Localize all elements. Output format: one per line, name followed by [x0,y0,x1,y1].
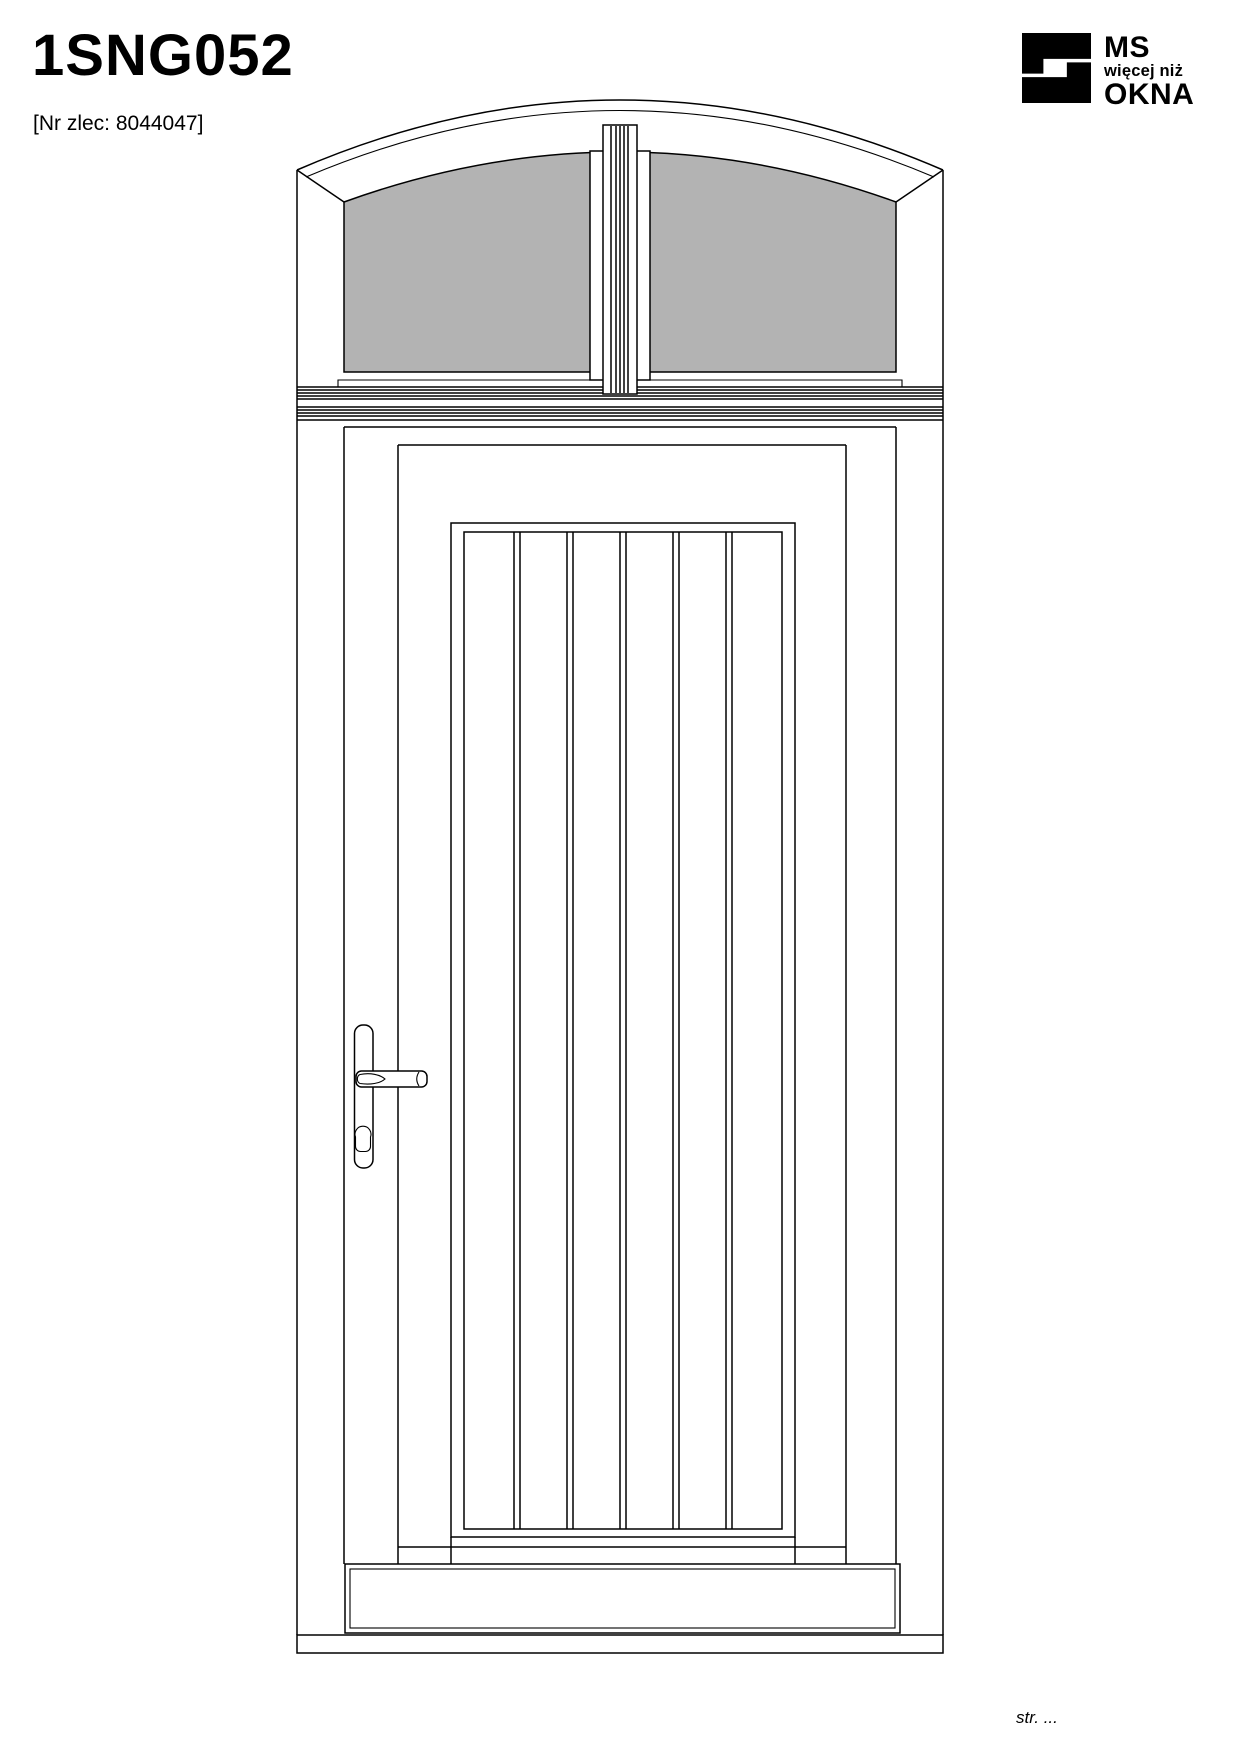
door-elevation-drawing [0,0,1240,1755]
door-handle [355,1025,428,1168]
lock-cylinder [355,1126,371,1151]
threshold [297,1635,943,1653]
central-fluted-mullion [590,125,650,394]
weatherboard [345,1564,900,1633]
plank-panel-grooves [514,532,732,1529]
page-number: str. ... [1016,1708,1058,1728]
